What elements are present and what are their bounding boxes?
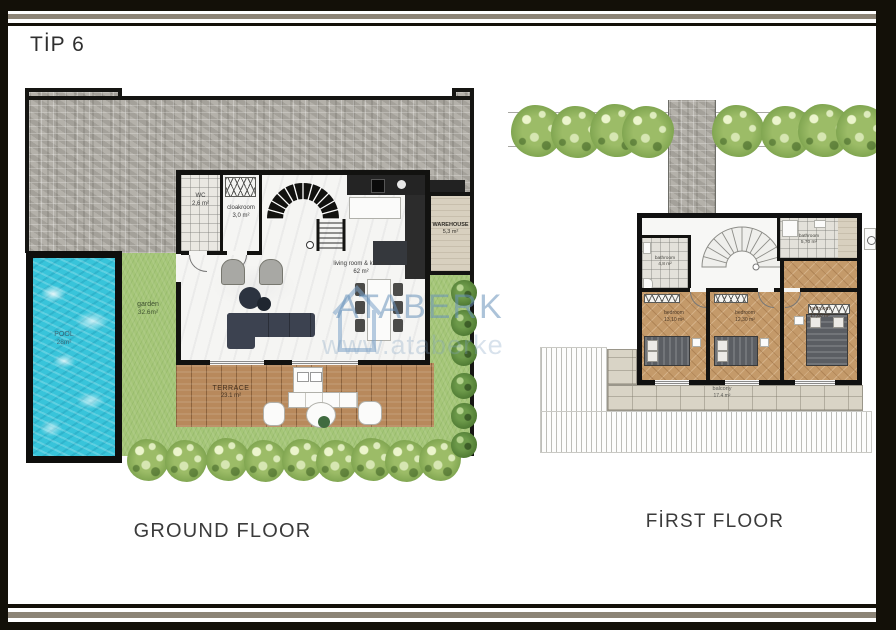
watermark-brand: ATABERK xyxy=(336,288,504,327)
balcony-label: balcony 17.4 m² xyxy=(690,386,754,400)
staircase-ground xyxy=(256,171,350,255)
bush xyxy=(127,439,169,481)
wc-name: WC xyxy=(181,193,220,201)
window xyxy=(725,380,759,385)
bathroom-large-area: 5,70 m² xyxy=(780,240,838,246)
wall xyxy=(780,261,784,380)
hedge-bush xyxy=(712,105,764,157)
hedge-bush xyxy=(622,106,674,158)
window xyxy=(210,360,264,365)
terrace-name: TERRACE xyxy=(196,384,266,393)
pool-area: 28m² xyxy=(40,339,88,347)
tree xyxy=(451,403,477,429)
tree xyxy=(451,373,477,399)
bathroom-small-label: bathroom 4,8 m² xyxy=(642,256,688,268)
window xyxy=(655,380,689,385)
balcony-tiles-side xyxy=(607,349,637,385)
nightstand xyxy=(760,338,769,347)
sofa-chaise xyxy=(227,313,255,349)
watermark-url: www.ataberke xyxy=(322,330,504,361)
cloakroom-label: cloakroom 3,0 m² xyxy=(223,205,259,221)
floor-plan-sheet: TİP 6 POOL 28m² garden 32.6m² TERRACE 23… xyxy=(0,0,896,630)
outdoor-chair xyxy=(263,402,285,426)
house-first: bathroom 4,8 m² bathroom 5,70 m² xyxy=(637,213,862,385)
bed xyxy=(806,314,848,366)
wc-label: WC 2,6 m² xyxy=(181,193,220,209)
cloakroom-area: 3,0 m² xyxy=(223,213,259,221)
pergola-hatch xyxy=(540,411,872,453)
pool-label: POOL 28m² xyxy=(40,330,88,348)
bathroom-sink xyxy=(814,220,826,228)
plant-pot xyxy=(318,416,330,428)
door-swing xyxy=(189,255,207,272)
warehouse-area: 5,3 m² xyxy=(431,229,470,236)
cloakroom-name: cloakroom xyxy=(223,205,259,213)
warehouse-roof-block xyxy=(427,180,465,192)
nightstand xyxy=(692,338,701,347)
garden-label: garden 32.6m² xyxy=(122,300,174,318)
bathroom-small-area: 4,8 m² xyxy=(642,262,688,268)
staircase-first xyxy=(698,217,786,271)
stone-path xyxy=(668,100,716,214)
living-kitchen-area: 62 m² xyxy=(317,269,405,277)
armchair xyxy=(259,259,283,285)
ac-unit xyxy=(864,228,876,250)
door-opening xyxy=(176,254,181,282)
kitchen-sink xyxy=(397,180,406,189)
wall xyxy=(642,288,857,292)
wc-area: 2,6 m² xyxy=(181,201,220,209)
garden-name: garden xyxy=(122,300,174,309)
terrace-area: 23.1 m² xyxy=(196,393,266,401)
wc-room xyxy=(181,175,220,251)
balcony-area: 17.4 m² xyxy=(690,393,754,400)
frame-bottom xyxy=(0,604,896,630)
living-kitchen-label: living room & kitchen 62 m² xyxy=(317,261,405,277)
outdoor-sink-unit xyxy=(293,367,323,393)
wall xyxy=(706,292,710,380)
coffee-table-small xyxy=(257,297,271,311)
garden-area: 32.6m² xyxy=(122,309,174,317)
warehouse-name: WAREHOUSE xyxy=(431,222,470,229)
wall xyxy=(642,235,688,238)
kitchen-counter-top xyxy=(347,175,425,195)
window xyxy=(795,380,835,385)
bedroom-2-label: bedroom 12,30 m² xyxy=(710,310,780,323)
cloakroom-wardrobe xyxy=(225,177,256,197)
wardrobe xyxy=(644,294,680,303)
bathroom-sink xyxy=(643,242,651,254)
ac-fan-icon xyxy=(867,236,876,245)
warehouse-room: WAREHOUSE 5,3 m² xyxy=(427,192,474,275)
warehouse-label: WAREHOUSE 5,3 m² xyxy=(431,222,470,236)
armchair xyxy=(221,259,245,285)
sink-basin xyxy=(310,372,322,382)
pool xyxy=(26,251,122,463)
balcony-name: balcony xyxy=(690,386,754,393)
kitchen-island-white xyxy=(349,197,401,219)
bedroom-1-label: bedroom 13,10 m² xyxy=(642,310,706,323)
bedroom-3-area: 17,60 m² xyxy=(788,313,852,320)
frame-right xyxy=(876,0,896,630)
bedroom-1-area: 13,10 m² xyxy=(642,317,706,324)
kitchen-counter-side xyxy=(405,195,425,279)
bush xyxy=(206,438,249,481)
bed xyxy=(644,336,690,366)
bedroom-3-label: bedroom 17,60 m² xyxy=(788,306,852,319)
bedroom-2-area: 12,30 m² xyxy=(710,317,780,324)
cooktop xyxy=(371,179,385,193)
page-title: TİP 6 xyxy=(30,33,85,57)
frame-left xyxy=(0,0,8,630)
living-kitchen-name: living room & kitchen xyxy=(317,261,405,269)
tree xyxy=(451,432,477,458)
first-floor-caption: FİRST FLOOR xyxy=(620,511,810,533)
wardrobe xyxy=(714,294,748,303)
bush xyxy=(165,440,207,482)
bathroom-closet xyxy=(838,218,857,258)
terrace-label: TERRACE 23.1 m² xyxy=(196,384,266,401)
pool-name: POOL xyxy=(40,330,88,339)
bush xyxy=(244,440,286,482)
bathroom-large-label: bathroom 5,70 m² xyxy=(780,234,838,246)
frame-top xyxy=(0,0,896,26)
bed xyxy=(714,336,758,366)
outdoor-chair xyxy=(358,401,382,425)
ground-floor-caption: GROUND FLOOR xyxy=(110,520,335,543)
sink-basin xyxy=(297,372,309,382)
